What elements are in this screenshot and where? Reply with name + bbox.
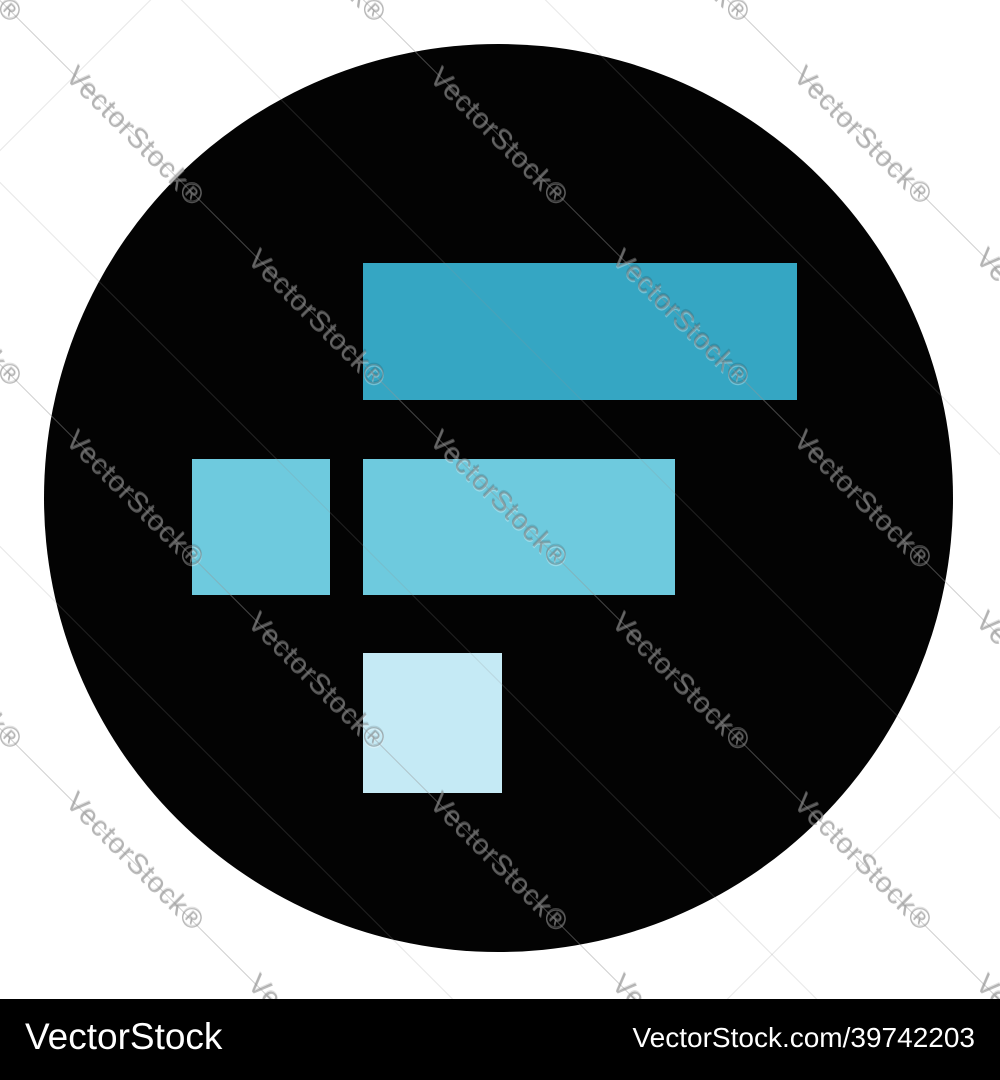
footer-bar: VectorStock VectorStock.com/39742203 xyxy=(0,999,1000,1080)
ftx-logo-middle-left-square xyxy=(192,459,330,595)
ftx-logo-top-bar xyxy=(363,263,797,400)
ftx-logo-bottom-square xyxy=(363,653,502,793)
stage: VectorStock®VectorStock®VectorStock®Vect… xyxy=(0,0,1000,1080)
footer-reference-text: VectorStock.com/39742203 xyxy=(633,1024,975,1056)
footer-brand-text: VectorStock xyxy=(25,1018,222,1061)
ftx-logo-middle-right-bar xyxy=(363,459,675,595)
ftx-logo xyxy=(0,0,1000,1080)
